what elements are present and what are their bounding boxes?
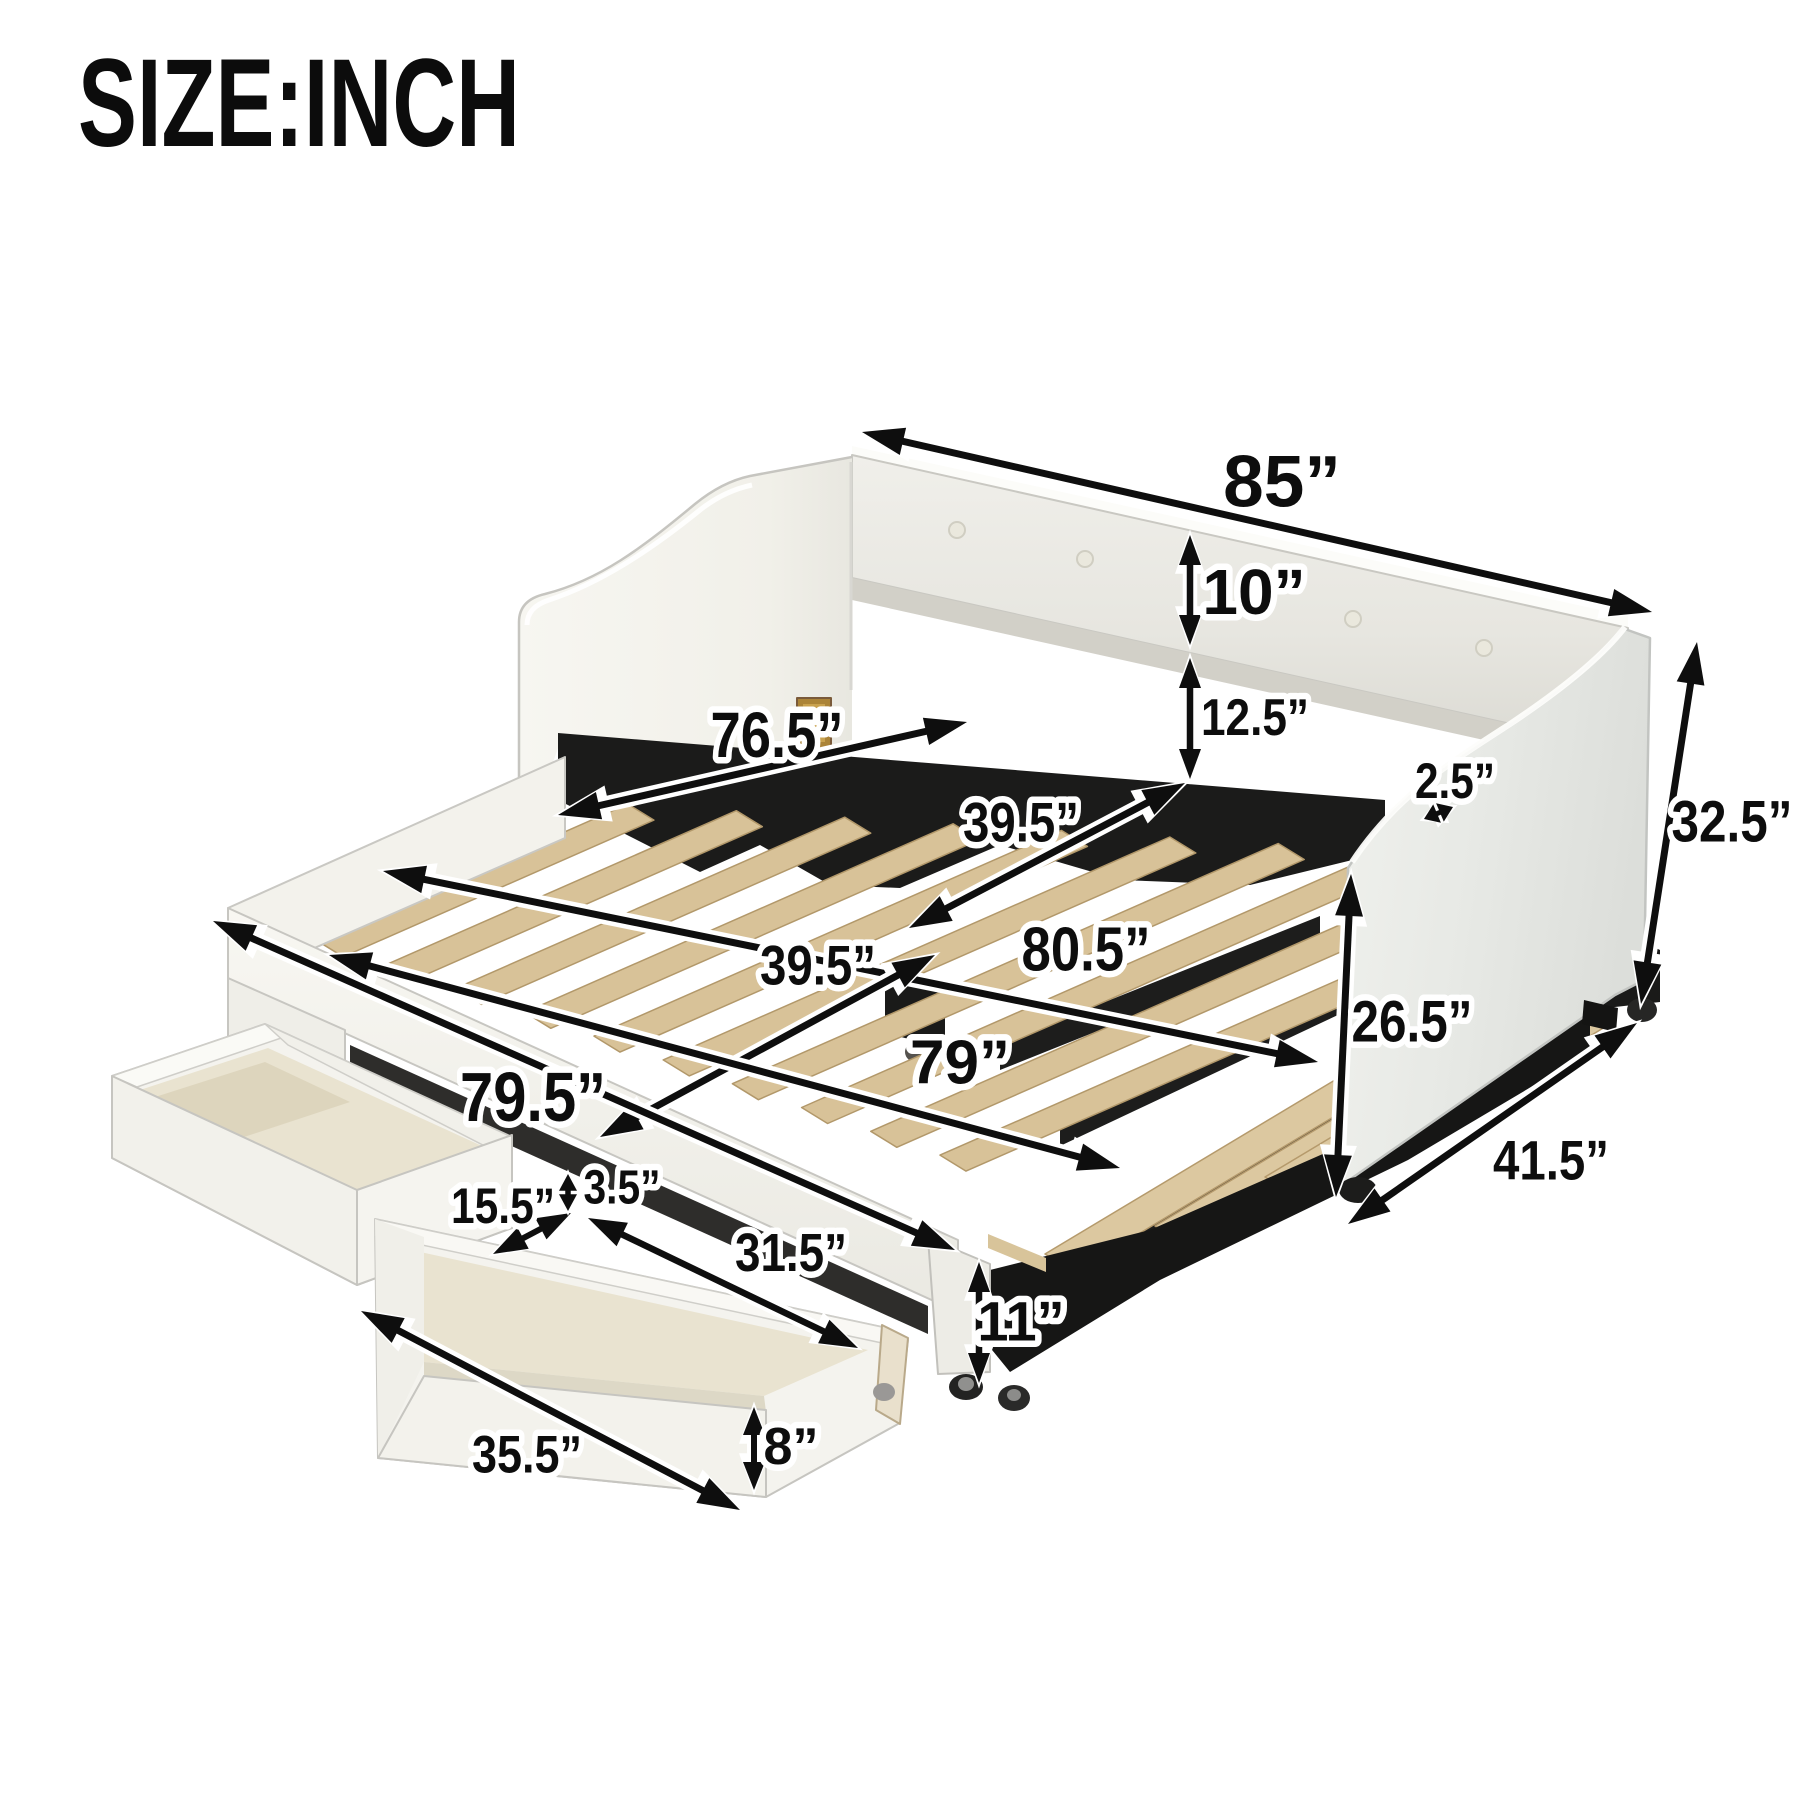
svg-text:41.5”: 41.5” [1493,1129,1609,1192]
svg-text:85”: 85” [1223,442,1341,523]
svg-text:11”: 11” [977,1290,1064,1353]
svg-text:31.5”: 31.5” [735,1223,847,1283]
svg-text:15.5”: 15.5” [451,1178,555,1234]
svg-text:80.5”: 80.5” [1022,916,1151,985]
svg-text:76.5”: 76.5” [711,699,844,771]
svg-text:32.5”: 32.5” [1672,790,1793,855]
svg-text:2.5”: 2.5” [1415,753,1495,809]
svg-text:79”: 79” [910,1029,1010,1098]
svg-text:35.5”: 35.5” [472,1426,582,1485]
svg-text:39.5”: 39.5” [963,791,1079,854]
svg-text:39.5”: 39.5” [760,934,876,997]
svg-text:3.5”: 3.5” [584,1162,661,1215]
svg-text:8”: 8” [764,1418,819,1476]
svg-text:10”: 10” [1202,556,1305,628]
svg-text:SIZE:INCH: SIZE:INCH [78,34,520,173]
svg-text:26.5”: 26.5” [1352,990,1473,1055]
svg-text:12.5”: 12.5” [1201,689,1309,747]
svg-text:79.5”: 79.5” [460,1058,606,1136]
